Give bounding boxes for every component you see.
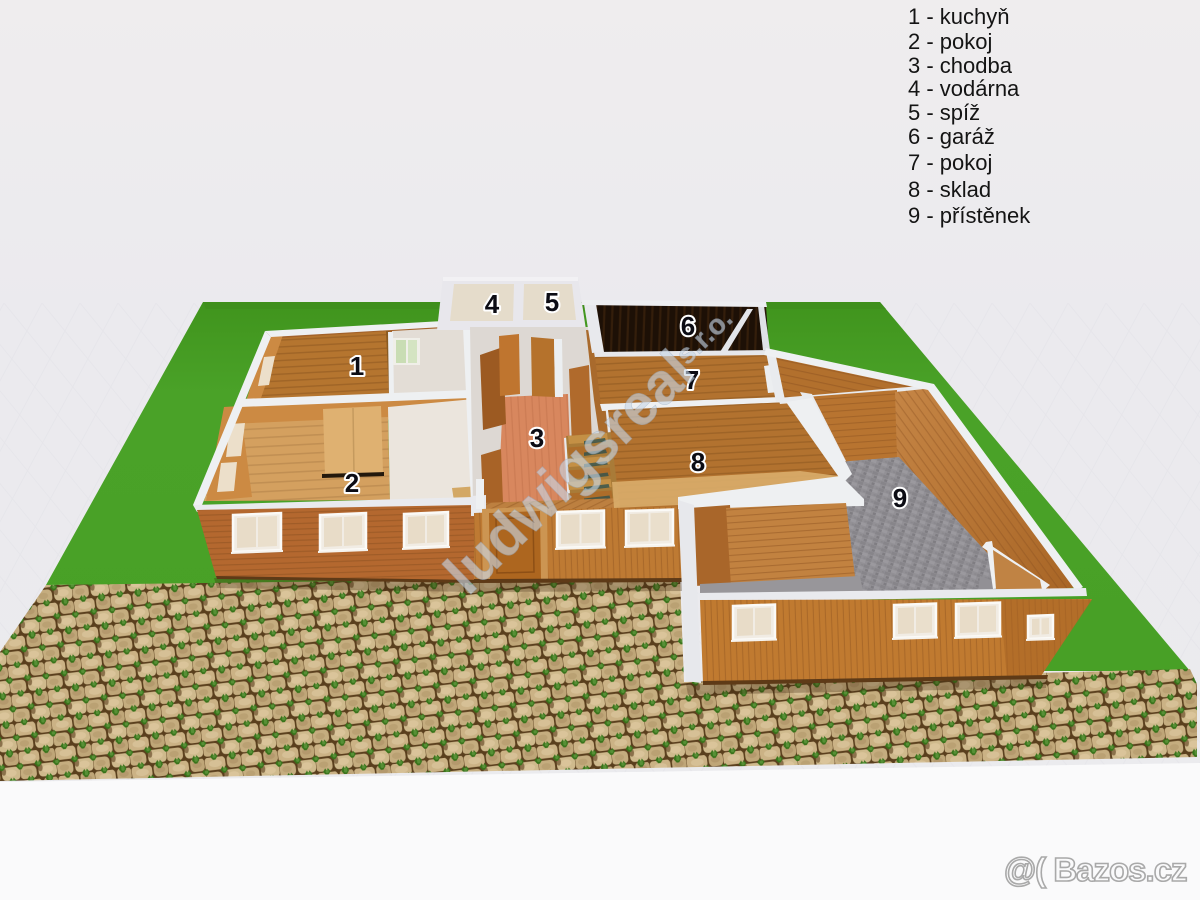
svg-text:2: 2	[345, 468, 359, 498]
svg-text:1 - kuchyň: 1 - kuchyň	[908, 4, 1010, 29]
svg-text:9 - přístěnek: 9 - přístěnek	[908, 203, 1031, 228]
svg-text:3 - chodba: 3 - chodba	[908, 53, 1013, 78]
svg-text:5: 5	[545, 287, 559, 317]
svg-text:5 - spíž: 5 - spíž	[908, 100, 980, 125]
svg-text:4 - vodárna: 4 - vodárna	[908, 76, 1020, 101]
svg-text:4: 4	[485, 289, 500, 319]
svg-text:1: 1	[350, 351, 364, 381]
svg-text:2 - pokoj: 2 - pokoj	[908, 29, 992, 54]
svg-text:8: 8	[691, 447, 705, 477]
svg-text:9: 9	[893, 483, 907, 513]
svg-text:3: 3	[530, 423, 544, 453]
svg-text:8 - sklad: 8 - sklad	[908, 177, 991, 202]
svg-text:@( Bazos.cz: @( Bazos.cz	[1004, 851, 1187, 888]
svg-text:7 - pokoj: 7 - pokoj	[908, 150, 992, 175]
svg-text:6 - garáž: 6 - garáž	[908, 124, 995, 149]
